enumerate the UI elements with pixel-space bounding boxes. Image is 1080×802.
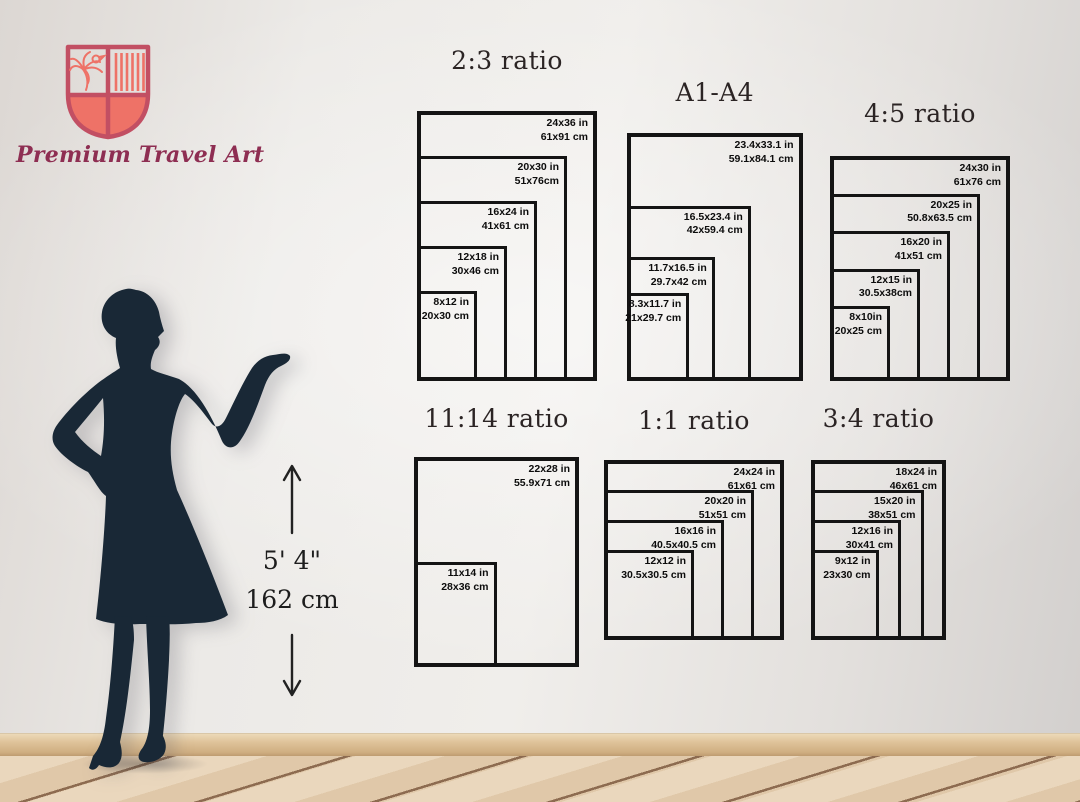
size-label: 15x20 in38x51 cm (868, 495, 915, 523)
size-label-in: 11x14 in (441, 567, 488, 581)
size-label-cm: 20x30 cm (422, 310, 469, 324)
size-label-cm: 30.5x30.5 cm (621, 569, 686, 583)
size-label-in: 20x20 in (699, 495, 746, 509)
size-label-in: 16x16 in (651, 525, 716, 539)
size-label: 24x36 in61x91 cm (541, 117, 588, 145)
size-frame: 8.3x11.7 in21x29.7 cm (627, 293, 689, 381)
size-guide-poster: Premium Travel Art 5' 4" 162 cm 2:3 rati… (0, 0, 1080, 802)
size-label-in: 16.5x23.4 in (684, 211, 743, 225)
size-label-in: 11.7x16.5 in (648, 262, 706, 276)
size-label-in: 8x10in (835, 311, 882, 325)
size-label-in: 9x12 in (823, 555, 870, 569)
size-label: 16x24 in41x61 cm (482, 206, 529, 234)
size-label: 12x15 in30.5x38cm (859, 274, 912, 302)
arrow-down-icon (284, 635, 300, 695)
size-label-cm: 51x76cm (515, 175, 559, 189)
brand-name: Premium Travel Art (16, 142, 216, 168)
size-label: 20x30 in51x76cm (515, 161, 559, 189)
size-label: 16x20 in41x51 cm (895, 236, 942, 264)
size-label-cm: 29.7x42 cm (648, 276, 706, 290)
size-label: 8x12 in20x30 cm (422, 296, 469, 324)
size-label-in: 8x12 in (422, 296, 469, 310)
size-label: 20x20 in51x51 cm (699, 495, 746, 523)
size-label-in: 12x12 in (621, 555, 686, 569)
size-label-cm: 50.8x63.5 cm (907, 212, 972, 226)
size-label-cm: 42x59.4 cm (684, 224, 743, 238)
size-label: 9x12 in23x30 cm (823, 555, 870, 583)
size-label-in: 18x24 in (890, 466, 937, 480)
size-frame: 12x12 in30.5x30.5 cm (604, 550, 694, 640)
size-group-title-4-5: 4:5 ratio (864, 99, 976, 128)
size-label-cm: 23x30 cm (823, 569, 870, 583)
size-label-in: 12x18 in (452, 251, 499, 265)
size-group-title-11-14: 11:14 ratio (424, 404, 568, 433)
size-label-cm: 20x25 cm (835, 325, 882, 339)
size-label-in: 16x24 in (482, 206, 529, 220)
size-group-title-2-3: 2:3 ratio (451, 46, 563, 75)
size-label: 11.7x16.5 in29.7x42 cm (648, 262, 706, 290)
size-label-cm: 30.5x38cm (859, 287, 912, 301)
size-label-cm: 41x51 cm (895, 250, 942, 264)
arrow-up-icon (284, 466, 300, 533)
height-imperial: 5' 4" (232, 546, 352, 575)
size-frame: 8x10in20x25 cm (830, 306, 890, 381)
size-label-cm: 21x29.7 cm (625, 312, 681, 326)
size-label: 11x14 in28x36 cm (441, 567, 488, 595)
size-label-cm: 61x91 cm (541, 131, 588, 145)
size-label: 12x18 in30x46 cm (452, 251, 499, 279)
size-label: 12x12 in30.5x30.5 cm (621, 555, 686, 583)
size-label-in: 24x36 in (541, 117, 588, 131)
height-metric: 162 cm (232, 585, 352, 614)
size-group-title-1-1: 1:1 ratio (638, 406, 750, 435)
size-label-cm: 61x76 cm (954, 176, 1001, 190)
size-label: 22x28 in55.9x71 cm (514, 463, 570, 491)
size-label-in: 24x24 in (728, 466, 775, 480)
woman-silhouette (40, 282, 300, 777)
size-label-in: 16x20 in (895, 236, 942, 250)
size-label-in: 8.3x11.7 in (625, 298, 681, 312)
size-label-in: 22x28 in (514, 463, 570, 477)
size-label: 8x10in20x25 cm (835, 311, 882, 339)
size-frame: 8x12 in20x30 cm (417, 291, 477, 381)
size-label-in: 15x20 in (868, 495, 915, 509)
size-label-in: 20x25 in (907, 199, 972, 213)
shield-crest-icon (62, 42, 154, 140)
size-frame: 11x14 in28x36 cm (414, 562, 497, 667)
size-label: 16x16 in40.5x40.5 cm (651, 525, 716, 553)
size-label-in: 20x30 in (515, 161, 559, 175)
size-label-in: 24x30 in (954, 162, 1001, 176)
size-label-in: 23.4x33.1 in (729, 139, 794, 153)
size-label-cm: 30x46 cm (452, 265, 499, 279)
size-label: 23.4x33.1 in59.1x84.1 cm (729, 139, 794, 167)
size-label-cm: 28x36 cm (441, 581, 488, 595)
size-label-in: 12x15 in (859, 274, 912, 288)
size-label: 20x25 in50.8x63.5 cm (907, 199, 972, 227)
size-label: 8.3x11.7 in21x29.7 cm (625, 298, 681, 326)
size-label: 12x16 in30x41 cm (846, 525, 893, 553)
size-label-cm: 55.9x71 cm (514, 477, 570, 491)
size-label: 16.5x23.4 in42x59.4 cm (684, 211, 743, 239)
size-group-title-3-4: 3:4 ratio (823, 404, 935, 433)
size-group-title-a1-a4: A1-A4 (676, 78, 754, 107)
size-label: 24x30 in61x76 cm (954, 162, 1001, 190)
size-label-cm: 41x61 cm (482, 220, 529, 234)
size-frame: 9x12 in23x30 cm (811, 550, 879, 640)
size-label-in: 12x16 in (846, 525, 893, 539)
size-label-cm: 59.1x84.1 cm (729, 153, 794, 167)
